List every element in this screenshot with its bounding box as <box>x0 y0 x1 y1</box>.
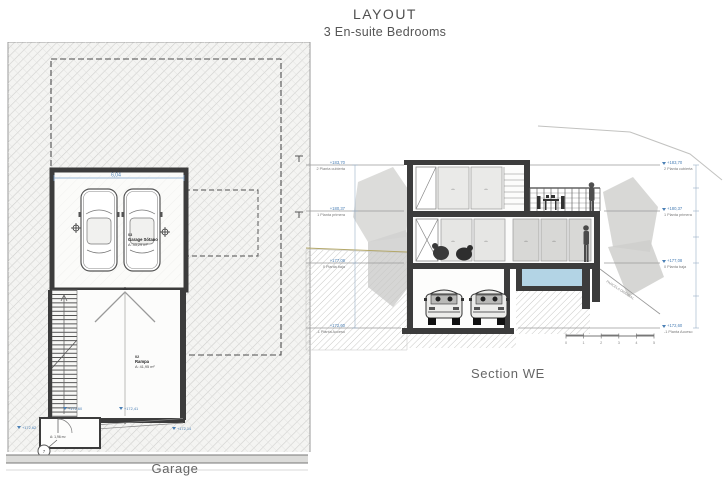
elevation-value: +183,70 <box>330 160 346 165</box>
person-figure <box>589 182 595 211</box>
svg-text:↔: ↔ <box>552 238 557 244</box>
svg-text:↔: ↔ <box>484 238 489 244</box>
elevation-value: +183,70 <box>667 160 683 165</box>
plan-caption: Garage <box>130 461 220 476</box>
garage-floor-plan: 6,04 <box>6 42 316 478</box>
terrace <box>530 182 600 211</box>
spot-level: +172,41 <box>124 406 138 411</box>
entry-area-label: A: 1,96 m² <box>50 435 67 439</box>
floor-name: 0 Planta baja <box>664 265 687 269</box>
section-caption: Section WE <box>448 366 568 381</box>
section-we-drawing: ↔↔ ↔↔ <box>298 122 726 372</box>
elevation-labels-right: +183,70 2 Planta cubierta +180,37 1 Plan… <box>662 160 693 334</box>
elevation-value: +177,08 <box>330 258 346 263</box>
floor-name: 2 Planta cubierta <box>317 167 346 171</box>
elevation-value: +177,08 <box>667 258 683 263</box>
sheet-title-block: LAYOUT 3 En-suite Bedrooms <box>250 6 520 39</box>
elevation-value: +180,37 <box>667 206 683 211</box>
scale-tick: 3 <box>618 341 620 345</box>
svg-text:↔: ↔ <box>524 238 529 244</box>
room-name: Garage Sótano <box>128 237 158 242</box>
floor-name: 1 Planta primera <box>317 213 346 217</box>
garage-building: 6,04 <box>52 170 186 290</box>
car-top-view <box>79 189 120 271</box>
room-area: A: 41,95 m² <box>135 365 155 369</box>
room-name: Rampa <box>135 359 150 364</box>
scale-bar: 0 1 2 3 4 5 <box>565 334 655 346</box>
scale-tick: 4 <box>635 341 637 345</box>
svg-text:↔: ↔ <box>451 238 456 244</box>
spot-level: +172,60 <box>68 406 83 411</box>
car-top-view <box>122 189 163 271</box>
sheet-title: LAYOUT <box>250 6 520 22</box>
floor-name: 0 Planta baja <box>323 265 346 269</box>
scale-tick: 5 <box>653 341 655 345</box>
architectural-layout-sheet: LAYOUT 3 En-suite Bedrooms <box>0 0 726 485</box>
floor-name: -1 Planta Acceso <box>664 330 693 334</box>
svg-text:↔: ↔ <box>451 186 456 192</box>
sheet-subtitle: 3 En-suite Bedrooms <box>250 25 520 39</box>
room-area: A: 43,29 m² <box>128 243 148 247</box>
scale-tick: 2 <box>600 341 602 345</box>
scale-tick: 0 <box>565 341 567 345</box>
floor-name: 2 Planta cubierta <box>664 167 693 171</box>
elevation-value: +172,60 <box>330 323 346 328</box>
dim-label: 6,04 <box>111 173 121 179</box>
floor-name: -1 Planta Acceso <box>317 330 346 334</box>
svg-text:↔: ↔ <box>484 186 489 192</box>
spot-level: +172,14 <box>177 426 192 431</box>
spot-level: +172,62 <box>22 425 36 430</box>
pool-water <box>522 269 582 286</box>
floor-name: 1 Planta primera <box>664 213 693 217</box>
elevation-value: +172,60 <box>667 323 683 328</box>
elevation-value: +180,37 <box>330 206 346 211</box>
scale-tick: 1 <box>583 341 585 345</box>
ramp-and-stairs: 02 Rampa A: 41,95 m² <box>48 290 186 420</box>
